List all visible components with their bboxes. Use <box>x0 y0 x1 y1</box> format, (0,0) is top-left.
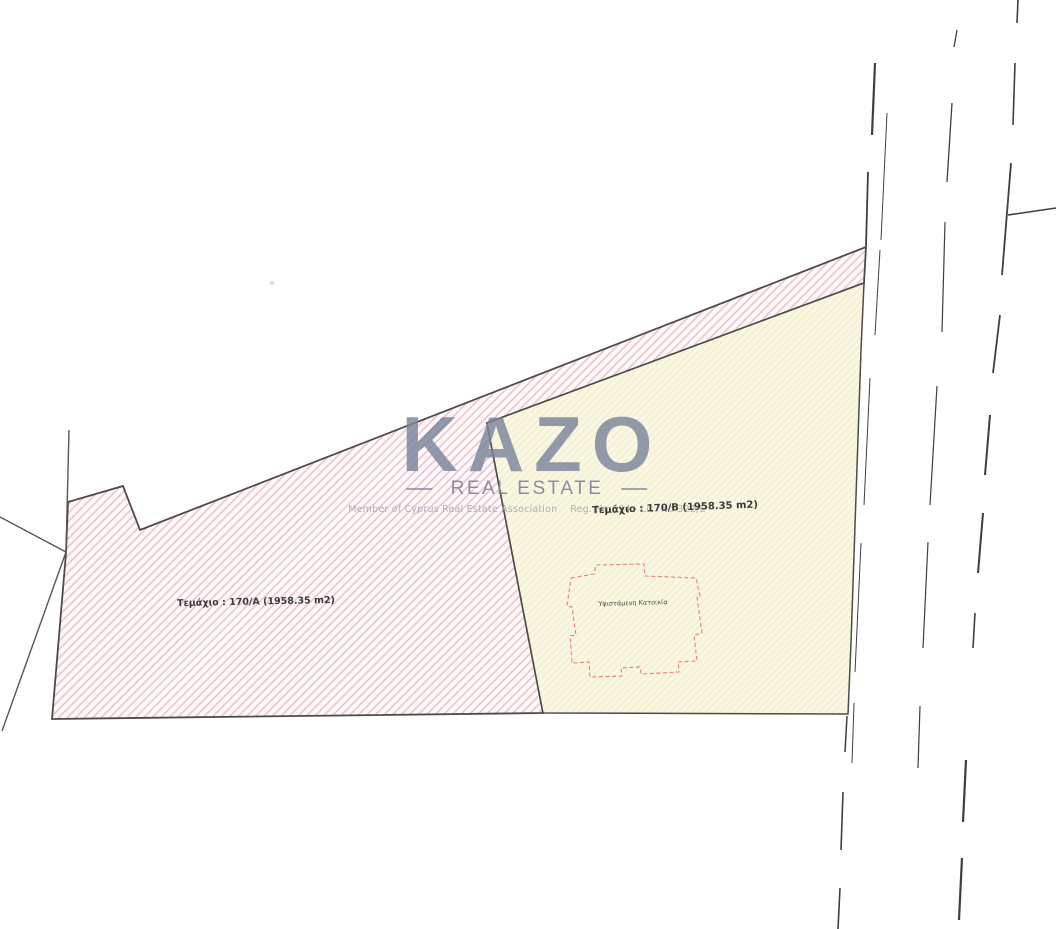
site-plan-drawing <box>0 0 1056 929</box>
neighbour-boundary-line <box>0 517 66 552</box>
road-boundary-dash <box>978 513 983 573</box>
road-boundary-dash <box>875 250 880 335</box>
road-boundary-dash <box>866 172 868 246</box>
road-boundary-dash <box>993 315 1000 373</box>
road-boundary-dash <box>1008 208 1056 215</box>
road-boundary-dash <box>930 386 937 505</box>
road-boundary-dash <box>985 415 990 475</box>
road-boundary-dash <box>881 113 887 240</box>
cadastral-plan-page: KAZO REAL ESTATE Member of Cyprus Real E… <box>0 0 1056 929</box>
road-boundary-dash <box>872 63 875 135</box>
road-boundary-dash <box>954 30 957 47</box>
road-boundary-dash <box>1017 0 1018 23</box>
road-boundary-dash <box>852 703 854 763</box>
road-boundary-dash <box>841 792 843 850</box>
road-boundary-dash <box>973 613 975 648</box>
road-boundary-dash <box>855 543 861 672</box>
road-boundary-dash <box>923 542 928 648</box>
road-boundary-dash <box>1013 63 1015 125</box>
road-boundary-dash <box>1002 163 1011 275</box>
road-boundary-dash <box>838 888 840 929</box>
road-boundary-dash <box>959 858 962 920</box>
road-boundary-dash <box>864 378 870 505</box>
road-boundary-dash <box>918 706 920 768</box>
road-boundary-dash <box>845 716 847 752</box>
road-boundary-dash <box>963 760 966 822</box>
road-boundary-dash <box>947 103 952 182</box>
road-boundary-dash <box>942 222 945 332</box>
scan-speck <box>270 281 274 285</box>
